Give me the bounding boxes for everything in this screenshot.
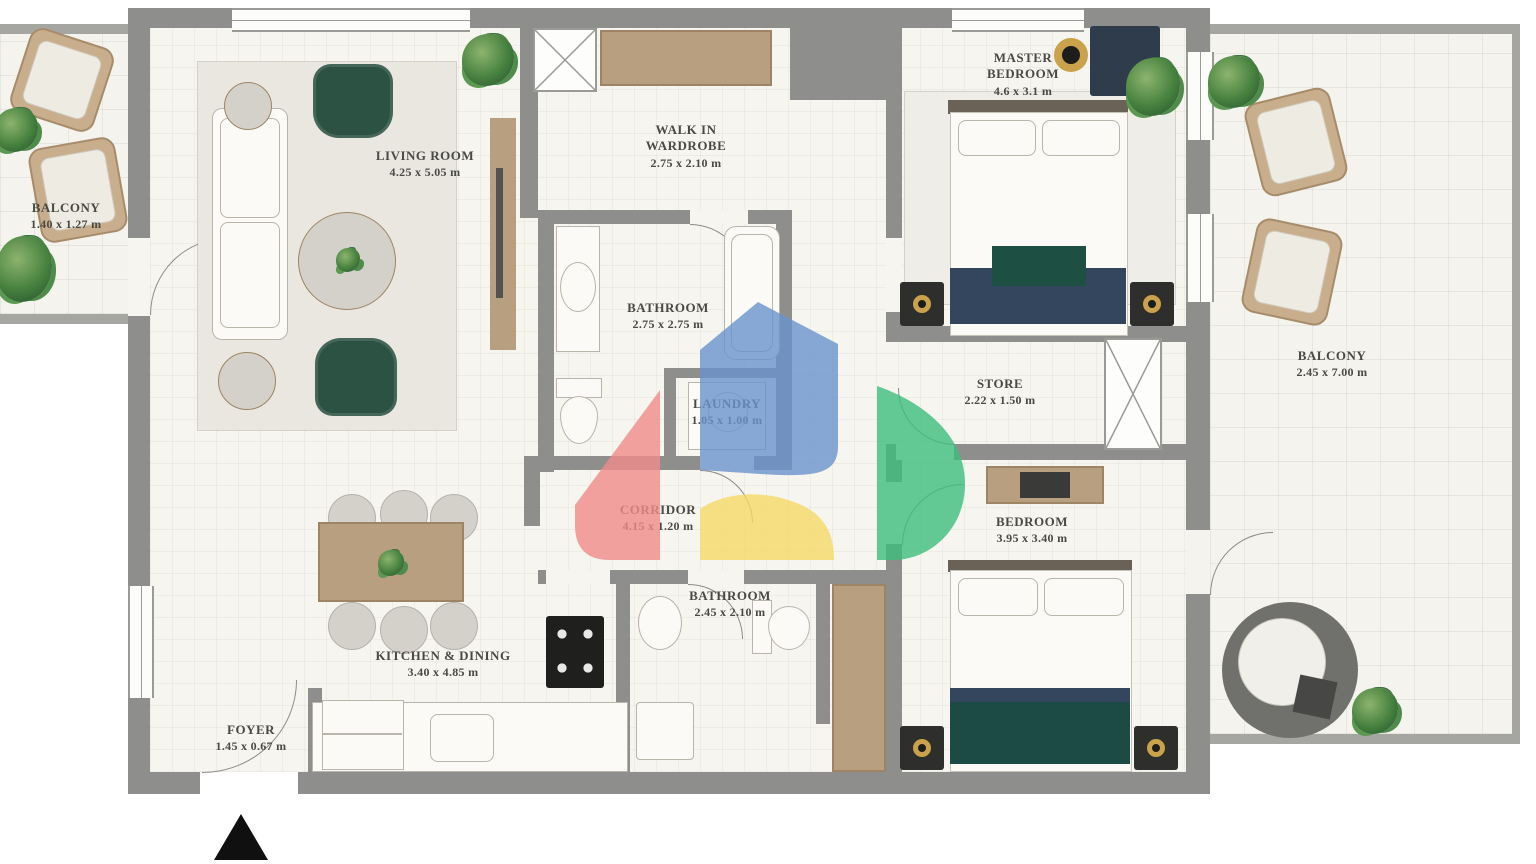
balcony-left-door-opening (128, 238, 150, 316)
stove (546, 616, 604, 688)
wall-bathroom-left (538, 210, 554, 472)
room-name: WALK IN WARDROBE (630, 122, 742, 155)
room-name: BALCONY (1252, 348, 1412, 364)
room-label-living-room: LIVING ROOM 4.25 x 5.05 m (330, 148, 520, 180)
room-dims: 3.40 x 4.85 m (338, 665, 548, 680)
room-label-foyer: FOYER 1.45 x 0.67 m (186, 722, 316, 754)
room-dims: 2.45 x 7.00 m (1252, 365, 1412, 380)
balcony-left-parapet-bottom (0, 314, 128, 324)
bathroom2-door-opening (688, 570, 744, 584)
room-dims: 1.45 x 0.67 m (186, 739, 316, 754)
room-dims: 4.25 x 5.05 m (330, 165, 520, 180)
master-bedroom-window-1 (1186, 52, 1214, 140)
room-label-walk-in-wardrobe: WALK IN WARDROBE 2.75 x 2.10 m (630, 122, 742, 171)
room-name: BATHROOM (640, 588, 820, 604)
room-label-balcony-right: BALCONY 2.45 x 7.00 m (1252, 348, 1412, 380)
room-dims: 1.40 x 1.27 m (4, 217, 128, 232)
room-label-kitchen-dining: KITCHEN & DINING 3.40 x 4.85 m (338, 648, 548, 680)
master-bench-green (992, 246, 1086, 286)
kitchen-window (128, 586, 154, 698)
master-pillow (958, 120, 1036, 156)
north-arrow (214, 814, 268, 860)
wall-shaft-block (790, 28, 886, 100)
sofa-cushion (220, 222, 280, 328)
bedroom-blanket-teal (950, 702, 1130, 764)
logo-blue-shape (700, 302, 838, 475)
master-lamp-right (1143, 295, 1161, 313)
room-name: LIVING ROOM (330, 148, 520, 164)
bedroom-wardrobe (832, 584, 886, 772)
master-pillow (1042, 120, 1120, 156)
living-room-window (232, 8, 470, 32)
bedroom-dresser-panel (1020, 472, 1070, 498)
room-label-balcony-left: BALCONY 1.40 x 1.27 m (4, 200, 128, 232)
armchair-green-top (313, 64, 393, 138)
room-name: MASTER BEDROOM (968, 50, 1078, 83)
wall-hall-master (886, 28, 902, 238)
room-name: BALCONY (4, 200, 128, 216)
shower-tray (636, 702, 694, 760)
dining-chair (328, 602, 376, 650)
bedroom-pillow (958, 578, 1038, 616)
dining-chair (380, 606, 428, 654)
room-name: BEDROOM (952, 514, 1112, 530)
kitchen-opening (546, 570, 610, 584)
balcony-left-parapet-top (0, 24, 128, 34)
tv-screen (496, 168, 503, 298)
bedroom-pillow (1044, 578, 1124, 616)
balcony-right-parapet-right (1512, 24, 1520, 744)
bathroom1-door-opening (690, 210, 748, 224)
room-name: FOYER (186, 722, 316, 738)
room-label-bathroom-2: BATHROOM 2.45 x 2.10 m (640, 588, 820, 620)
kitchen-sink (430, 714, 494, 762)
floor-plan-canvas: BALCONY 1.40 x 1.27 m LIVING ROOM 4.25 x… (0, 0, 1536, 864)
wall-corridor-stub (524, 456, 540, 526)
duct-shaft (533, 28, 597, 92)
sofa-cushion (220, 118, 280, 218)
logo-red-shape (575, 390, 660, 560)
master-bedroom-window-2 (1186, 214, 1214, 302)
wardrobe-closet (600, 30, 772, 86)
balcony-right-door-opening (1186, 530, 1210, 594)
logo-green-shape (877, 386, 965, 560)
room-label-master-bedroom: MASTER BEDROOM 4.6 x 3.1 m (968, 50, 1078, 99)
balcony-right-parapet-bottom (1210, 734, 1520, 744)
daybed-table (1292, 674, 1337, 719)
balcony-right-parapet-top (1210, 24, 1520, 34)
bedroom-blanket-navy (950, 688, 1130, 702)
bedroom-lamp-left (913, 739, 931, 757)
entrance-opening (200, 772, 298, 794)
side-table (224, 82, 272, 130)
side-table (218, 352, 276, 410)
room-label-bedroom: BEDROOM 3.95 x 3.40 m (952, 514, 1112, 546)
dining-chair (430, 602, 478, 650)
foyer-closet (322, 700, 404, 770)
room-name: KITCHEN & DINING (338, 648, 548, 664)
wall-wardrobe-bathroom (538, 210, 792, 224)
foyer-closet-line (322, 733, 402, 735)
room-dims: 2.75 x 2.10 m (630, 156, 742, 171)
developer-logo-watermark (562, 278, 972, 568)
armchair-green-bottom (315, 338, 397, 416)
store-shelf (1104, 338, 1162, 450)
room-dims: 2.45 x 2.10 m (640, 605, 820, 620)
room-dims: 4.6 x 3.1 m (968, 84, 1078, 99)
room-dims: 3.95 x 3.40 m (952, 531, 1112, 546)
bedroom-lamp-right (1147, 739, 1165, 757)
master-bedroom-top-window (952, 8, 1084, 32)
logo-yellow-shape (700, 494, 834, 560)
